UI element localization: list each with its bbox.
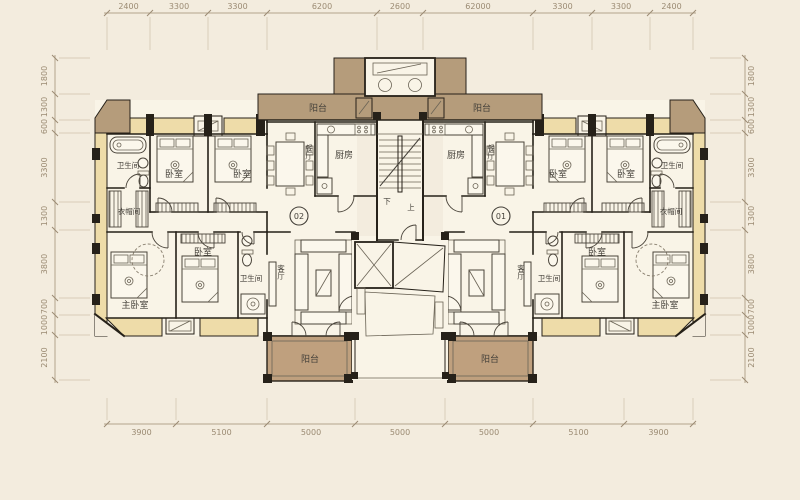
room-label-cloakroom: 衣帽间 xyxy=(118,206,141,216)
dim-label: 1000 xyxy=(747,315,756,335)
dim-label: 3300 xyxy=(747,157,756,177)
room-label-bathroom: 卫生间 xyxy=(538,273,561,283)
room-label-bedroom: 卧室 xyxy=(233,168,251,180)
dim-label: 2100 xyxy=(40,347,49,367)
room-label-balcony: 阳台 xyxy=(481,353,499,365)
stairs-up-label: 上 xyxy=(407,203,415,212)
dim-label: 2400 xyxy=(118,2,138,11)
room-label-balcony: 阳台 xyxy=(309,102,327,114)
dim-label: 3900 xyxy=(131,428,151,437)
dim-label: 600 xyxy=(40,119,49,134)
dim-label: 3800 xyxy=(747,254,756,274)
room-label-kitchen: 厨房 xyxy=(447,149,465,161)
dim-label: 3300 xyxy=(169,2,189,11)
room-label-bedroom: 卧室 xyxy=(549,168,567,180)
dim-label: 700 xyxy=(40,299,49,314)
dim-label: 700 xyxy=(747,299,756,314)
room-label-living: 客厅 xyxy=(516,263,525,280)
dim-label: 3300 xyxy=(227,2,247,11)
dim-label: 1300 xyxy=(747,206,756,226)
room-label-bathroom: 卫生间 xyxy=(117,160,140,170)
dim-label: 1300 xyxy=(747,97,756,117)
dim-label: 5000 xyxy=(390,428,410,437)
dim-label: 1800 xyxy=(747,66,756,86)
dim-label: 1800 xyxy=(40,66,49,86)
dim-label: 3300 xyxy=(611,2,631,11)
room-label-bedroom: 卧室 xyxy=(165,168,183,180)
dim-label: 1300 xyxy=(40,206,49,226)
room-label-bedroom: 卧室 xyxy=(194,246,212,258)
stairs-down-label: 下 xyxy=(383,197,391,206)
floor-plan: 卫生间 卧室 卧室 餐厅 厨房 衣帽间 主卧室 卧室 卫生间 客厅 阳台 阳台 … xyxy=(0,0,800,500)
unit-number-right: 01 xyxy=(496,212,506,221)
dim-label: 600 xyxy=(747,119,756,134)
dim-label: 2400 xyxy=(661,2,681,11)
dim-label: 1300 xyxy=(40,97,49,117)
machine-room xyxy=(365,58,435,96)
room-label-dining: 餐厅 xyxy=(304,144,313,160)
dim-label: 2100 xyxy=(747,347,756,367)
dim-label: 5000 xyxy=(301,428,321,437)
dim-label: 62000 xyxy=(465,2,490,11)
top-balcony-band xyxy=(258,94,542,120)
dim-label: 3900 xyxy=(648,428,668,437)
room-label-master-bedroom: 主卧室 xyxy=(651,299,678,311)
room-label-bedroom: 卧室 xyxy=(617,168,635,180)
dim-label: 2600 xyxy=(390,2,410,11)
room-label-living: 客厅 xyxy=(276,263,285,280)
dim-label: 3800 xyxy=(40,254,49,274)
dim-label: 5100 xyxy=(211,428,231,437)
room-label-master-bedroom: 主卧室 xyxy=(121,299,148,311)
room-label-bathroom: 卫生间 xyxy=(240,273,263,283)
dim-label: 3300 xyxy=(40,157,49,177)
room-label-kitchen: 厨房 xyxy=(335,149,353,161)
room-label-dining: 餐厅 xyxy=(486,144,495,160)
unit-number-left: 02 xyxy=(294,212,304,221)
room-label-balcony: 阳台 xyxy=(473,102,491,114)
dim-label: 6200 xyxy=(312,2,332,11)
dim-label: 3300 xyxy=(552,2,572,11)
dim-label: 5000 xyxy=(479,428,499,437)
room-label-balcony: 阳台 xyxy=(301,353,319,365)
dim-label: 5100 xyxy=(568,428,588,437)
room-label-bedroom: 卧室 xyxy=(588,246,606,258)
room-label-bathroom: 卫生间 xyxy=(661,160,684,170)
room-label-cloakroom: 衣帽间 xyxy=(660,206,683,216)
dim-label: 1000 xyxy=(40,315,49,335)
